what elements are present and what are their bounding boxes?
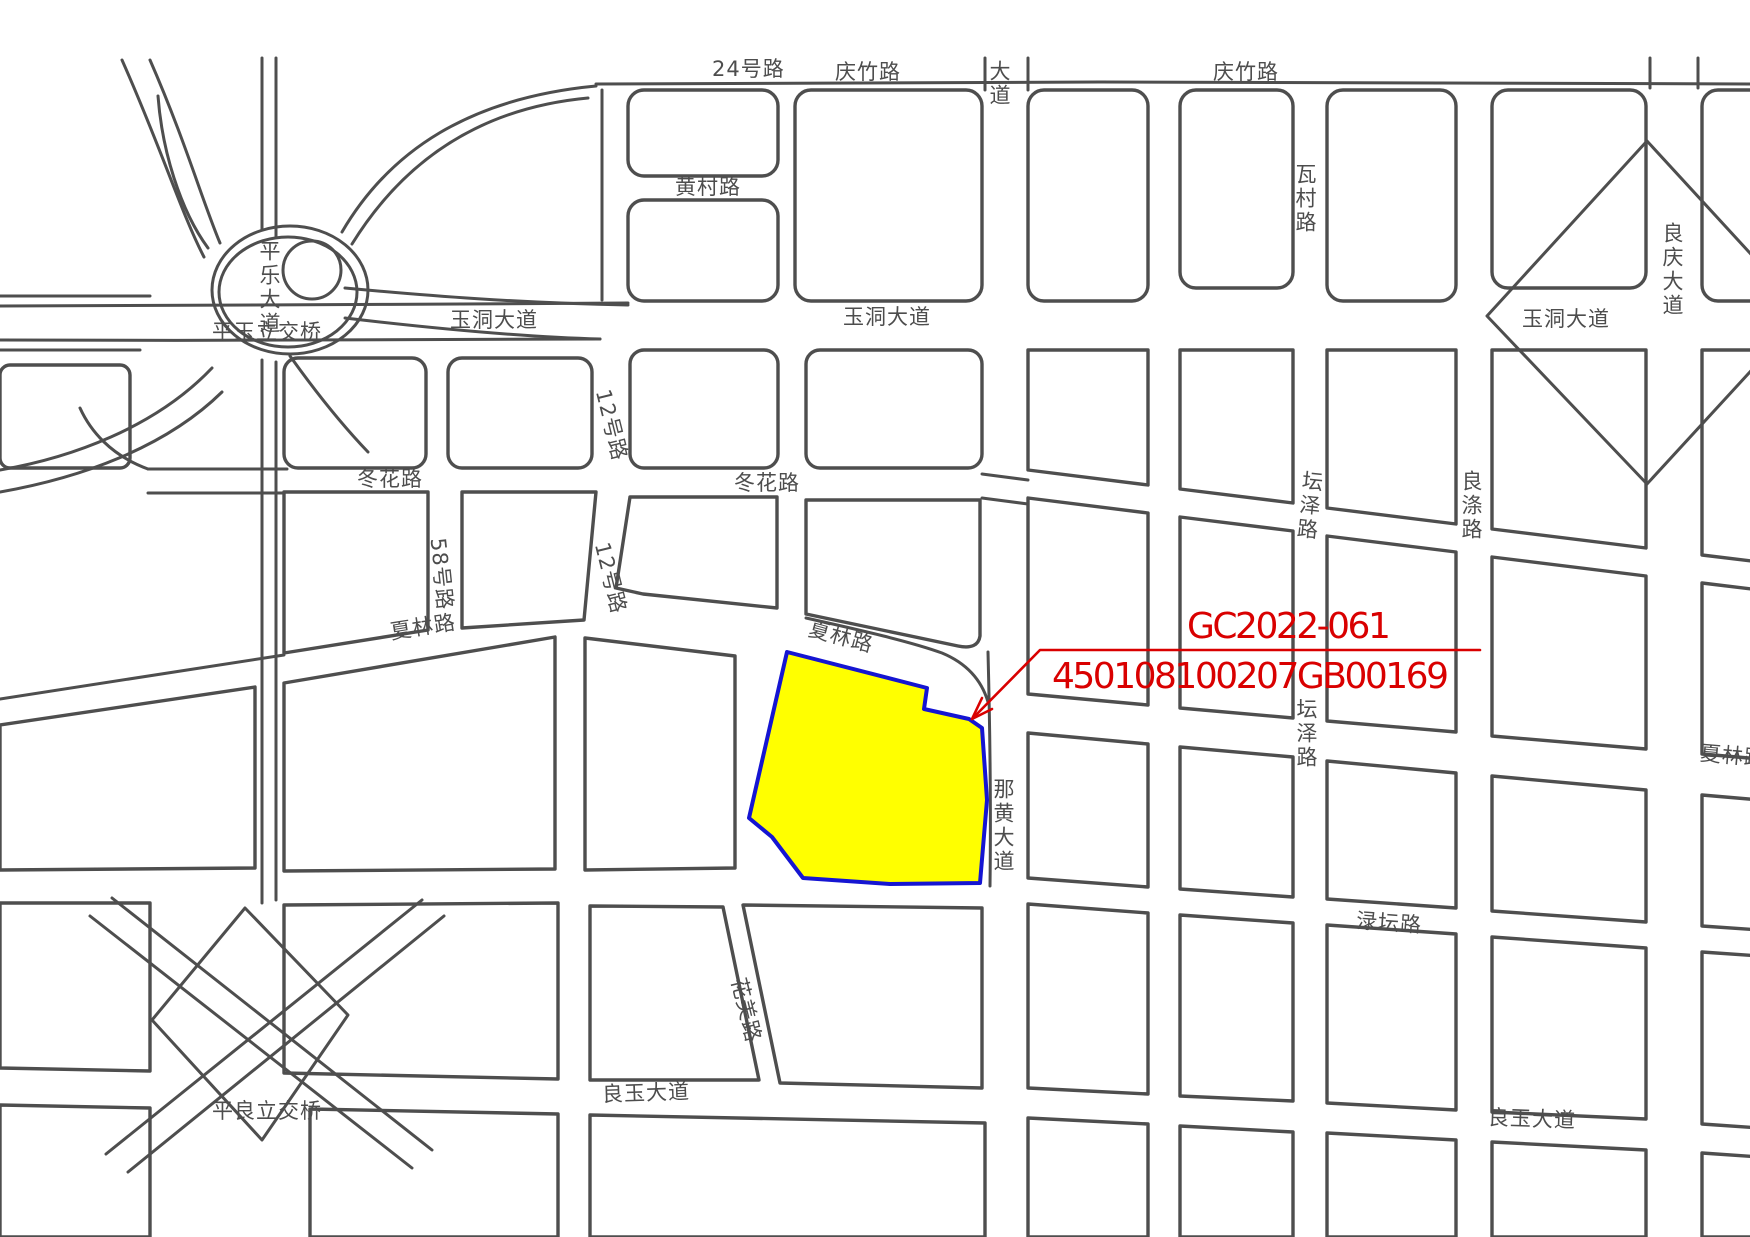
city-block [1327,925,1456,1110]
road-label-wacun-road: 瓦村路 [1294,163,1316,235]
city-block [1702,795,1750,930]
city-block [1492,90,1646,288]
city-block [1028,350,1148,485]
road-label-24-road: 24号路 [712,58,785,80]
parcel-location-map: GC2022-061 450108100207GB00169 大道 24号路 庆… [0,0,1750,1237]
city-block [743,905,982,1088]
road-label-liangyu-avenue-west: 良玉大道 [602,1080,691,1105]
city-block [1702,1153,1750,1237]
city-block [0,365,130,468]
road-label-liangdi-road: 良涤路 [1460,470,1482,542]
city-block [1327,761,1456,908]
city-block [590,1115,985,1237]
city-block [462,492,596,628]
city-block [0,903,150,1071]
city-block [1327,90,1456,301]
city-block [585,638,735,870]
city-block [1028,1118,1148,1237]
city-block [448,358,592,468]
city-block [1327,350,1456,524]
road-label-lutan-road: 渌坛路 [1355,910,1422,937]
road-label-qingzhu-road-east: 庆竹路 [1213,61,1279,83]
road-network-canvas: GC2022-061 450108100207GB00169 [0,0,1750,1237]
city-block [284,637,555,871]
city-block [1180,1126,1293,1237]
road-label-yudong-avenue-west: 玉洞大道 [450,309,538,331]
city-block [1327,1133,1456,1237]
road-label-dadao-partial: 大道 [988,60,1010,108]
city-block [1028,904,1148,1094]
road-label-yudong-avenue-center: 玉洞大道 [843,306,931,328]
parcel-project-code: GC2022-061 [1187,606,1388,647]
parcel-certificate-code: 450108100207GB00169 [1052,656,1447,697]
city-block [1492,776,1646,922]
road-label-donghua-road-center: 冬花路 [734,472,800,494]
road-label-nahuang-avenue: 那黄大道 [992,778,1014,874]
city-block [1702,952,1750,1128]
road-label-donghua-road-west: 冬花路 [357,468,423,490]
city-block [1028,90,1148,301]
city-block [630,350,778,468]
road-label-tanze-road-lower: 坛泽路 [1295,698,1317,770]
road-label-huangcun-road: 黄村路 [675,176,741,198]
road-label-pingyu-interchange: 平玉立交桥 [212,321,322,343]
city-block [628,200,778,301]
parcel-highlight [749,652,987,884]
road-label-liangqing-avenue: 良庆大道 [1661,222,1683,318]
city-block [628,90,778,176]
city-block [1702,90,1750,301]
city-block [1180,915,1293,1101]
road-label-xialin-road-east: 夏林路 [1699,742,1750,770]
road-label-liangyu-avenue-east: 良玉大道 [1488,1106,1577,1131]
city-block [1180,747,1293,897]
city-block [1180,90,1293,288]
city-block [1180,350,1293,503]
city-block [795,90,982,301]
road-label-pingliang-interchange: 平良立交桥 [212,1100,322,1122]
road-label-qingzhu-road-west: 庆竹路 [835,61,901,83]
city-block [806,350,982,468]
city-block [1492,1142,1646,1237]
city-block [1492,937,1646,1119]
city-block [1492,557,1646,749]
road-label-yudong-avenue-east: 玉洞大道 [1522,308,1610,330]
city-block [310,1109,558,1237]
city-block [0,687,255,870]
city-block [616,497,777,608]
city-block [1028,733,1148,887]
city-block [1702,583,1750,759]
city-block [1492,350,1646,548]
